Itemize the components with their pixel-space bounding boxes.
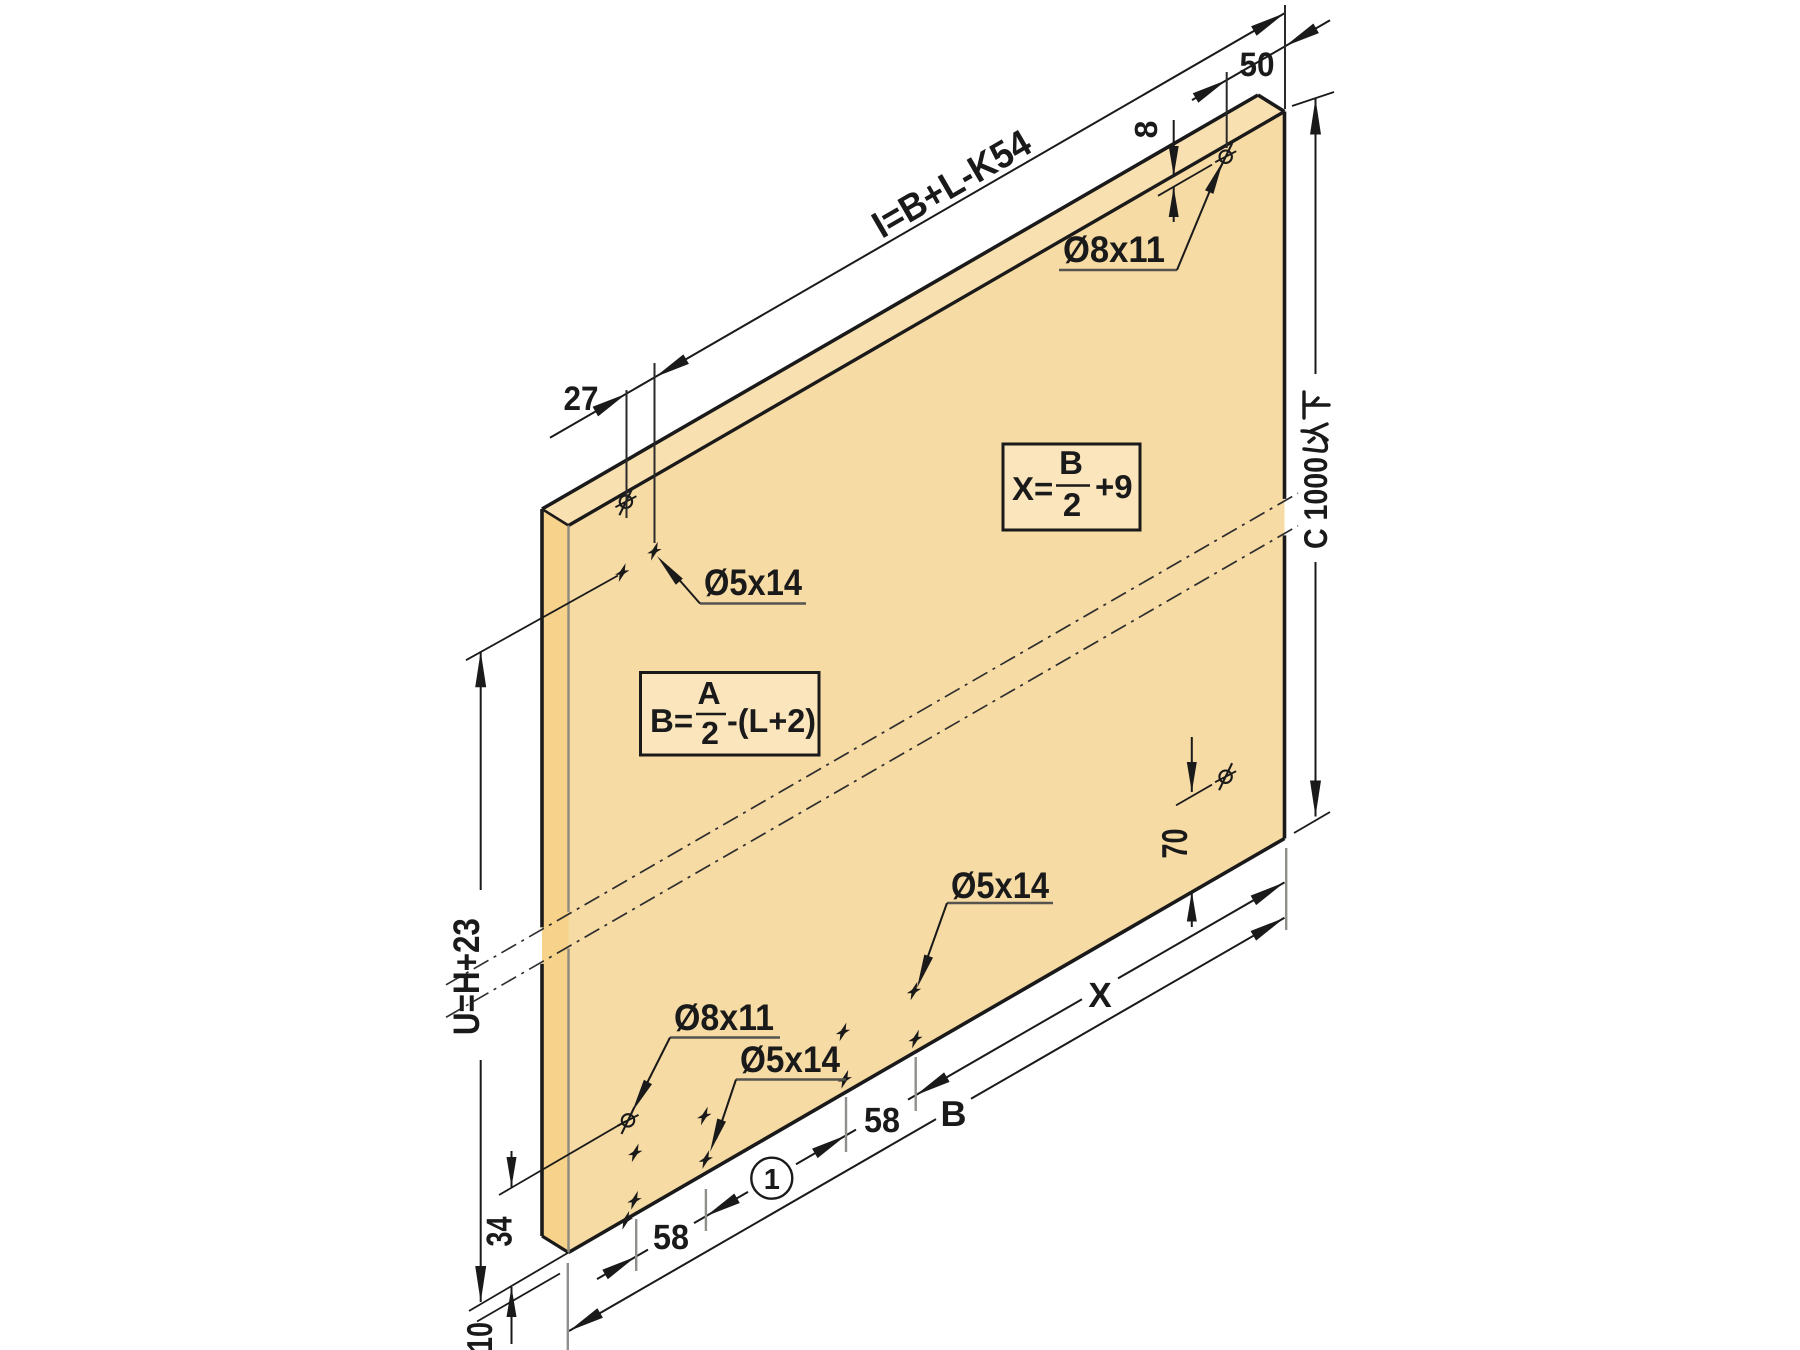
- svg-text:58: 58: [864, 1101, 900, 1140]
- svg-text:10: 10: [459, 1322, 500, 1350]
- svg-text:U=H+23: U=H+23: [446, 918, 487, 1035]
- svg-text:2: 2: [701, 715, 719, 751]
- svg-text:B: B: [941, 1093, 967, 1134]
- svg-text:X=: X=: [1012, 470, 1053, 507]
- svg-text:Ø8x11: Ø8x11: [1063, 229, 1165, 270]
- svg-text:50: 50: [1240, 46, 1275, 84]
- svg-text:Ø5x14: Ø5x14: [704, 562, 802, 603]
- svg-text:-(L+2): -(L+2): [727, 702, 816, 739]
- svg-text:Ø5x14: Ø5x14: [951, 865, 1049, 906]
- svg-text:X: X: [1088, 976, 1112, 1015]
- svg-text:2: 2: [1063, 486, 1081, 523]
- svg-text:1: 1: [764, 1164, 780, 1196]
- svg-text:8: 8: [1128, 121, 1164, 139]
- svg-text:Ø5x14: Ø5x14: [740, 1039, 840, 1080]
- svg-text:Ø8x11: Ø8x11: [674, 997, 774, 1038]
- svg-text:A: A: [697, 675, 720, 711]
- svg-text:27: 27: [564, 380, 599, 418]
- svg-text:C 1000: C 1000: [1297, 457, 1334, 549]
- svg-text:B=: B=: [650, 702, 693, 739]
- svg-text:+9: +9: [1095, 468, 1133, 505]
- svg-text:B: B: [1059, 444, 1083, 481]
- svg-text:34: 34: [479, 1217, 520, 1247]
- svg-text:58: 58: [653, 1218, 689, 1257]
- svg-text:70: 70: [1154, 829, 1195, 859]
